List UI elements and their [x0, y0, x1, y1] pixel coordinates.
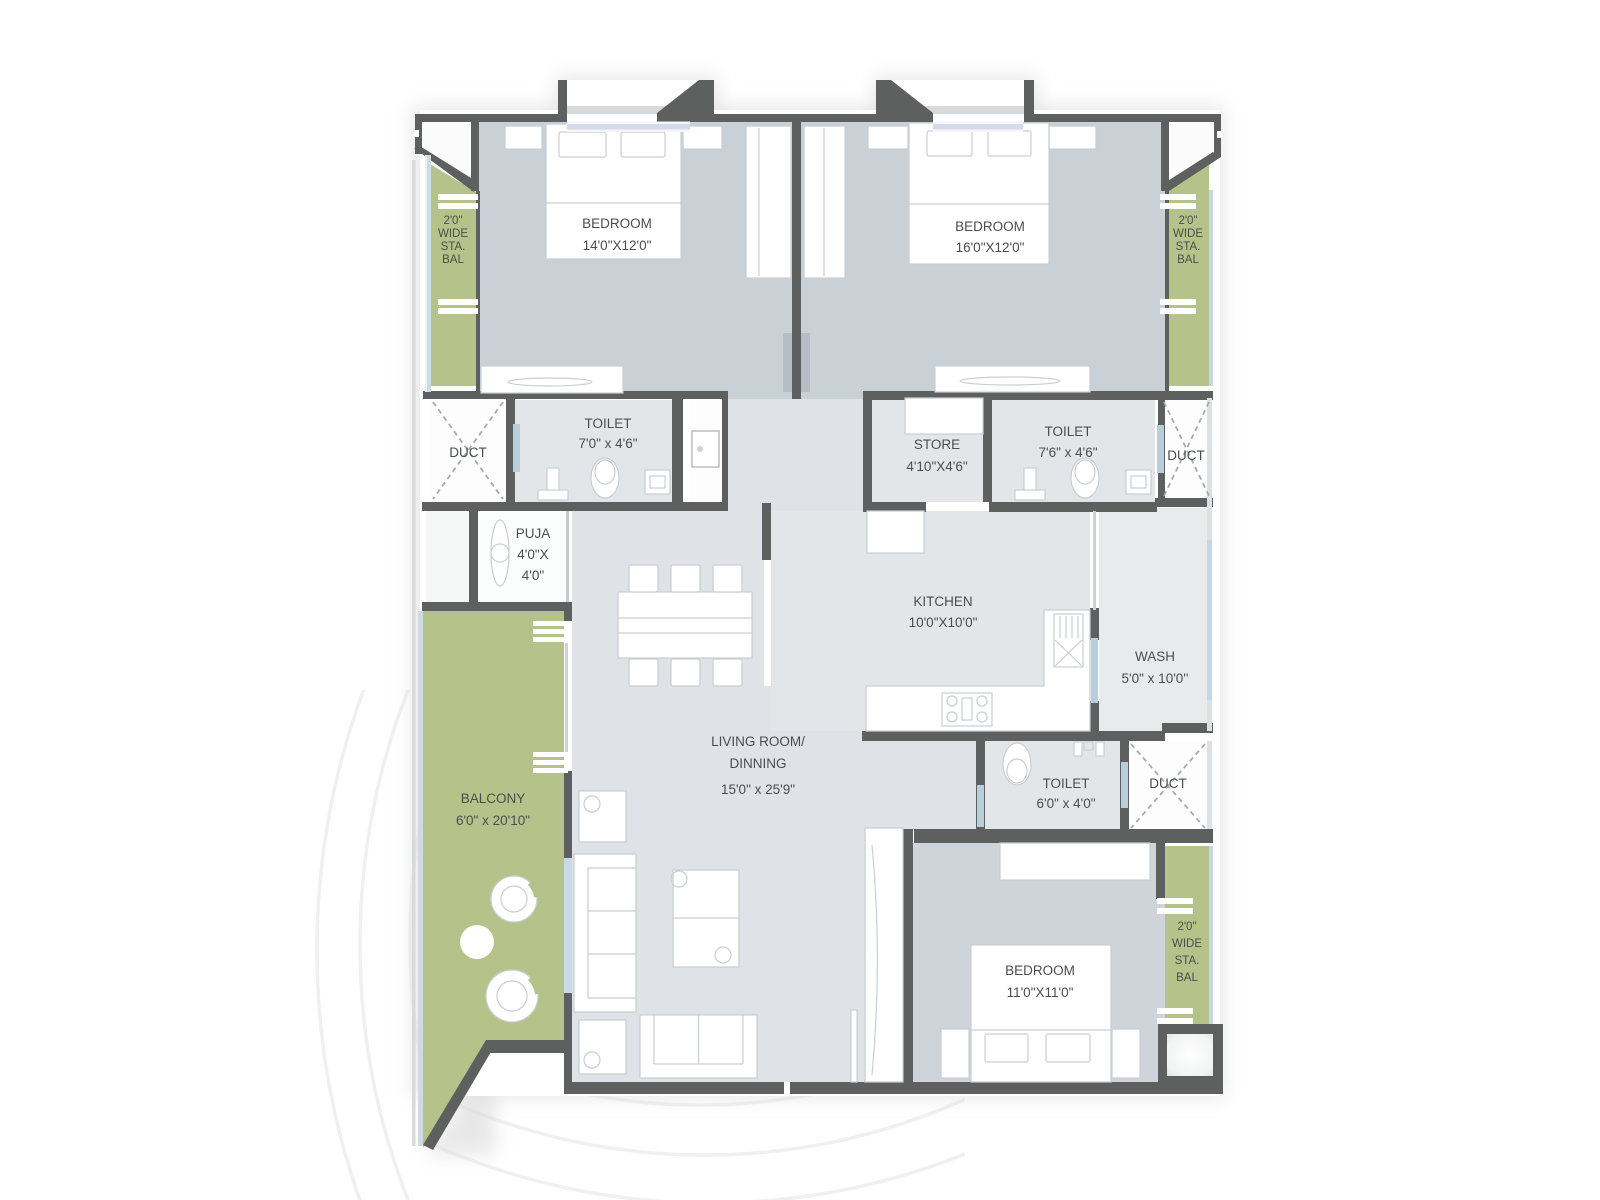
svg-text:4'0"X: 4'0"X: [517, 547, 548, 562]
svg-text:DUCT: DUCT: [1149, 776, 1187, 791]
svg-text:WIDE: WIDE: [1172, 938, 1202, 950]
svg-text:BEDROOM: BEDROOM: [1005, 963, 1075, 978]
svg-text:4'0": 4'0": [522, 568, 545, 583]
svg-text:TOILET: TOILET: [1042, 776, 1089, 791]
svg-text:BALCONY: BALCONY: [461, 791, 526, 806]
svg-text:LIVING ROOM/: LIVING ROOM/: [711, 734, 805, 749]
svg-text:STORE: STORE: [914, 437, 960, 452]
svg-text:15'0" x 25'9": 15'0" x 25'9": [721, 782, 795, 797]
svg-text:2'0": 2'0": [1177, 921, 1196, 933]
svg-text:TOILET: TOILET: [584, 416, 631, 431]
svg-text:BAL: BAL: [1177, 254, 1199, 266]
svg-text:10'0"X10'0": 10'0"X10'0": [909, 615, 978, 630]
svg-text:TOILET: TOILET: [1044, 424, 1091, 439]
svg-text:BAL: BAL: [442, 254, 464, 266]
svg-text:14'0"X12'0": 14'0"X12'0": [583, 238, 652, 253]
svg-text:2'0": 2'0": [1178, 215, 1197, 227]
svg-text:BEDROOM: BEDROOM: [955, 219, 1025, 234]
svg-text:WIDE: WIDE: [438, 228, 468, 240]
svg-text:6'0" x 20'10": 6'0" x 20'10": [456, 813, 530, 828]
svg-text:7'6" x 4'6": 7'6" x 4'6": [1038, 445, 1097, 460]
svg-text:KITCHEN: KITCHEN: [913, 594, 972, 609]
svg-text:DUCT: DUCT: [1167, 448, 1205, 463]
svg-text:4'10"X4'6": 4'10"X4'6": [906, 459, 967, 474]
svg-text:BEDROOM: BEDROOM: [582, 216, 652, 231]
svg-text:11'0"X11'0": 11'0"X11'0": [1007, 985, 1074, 1000]
svg-text:5'0" x 10'0'': 5'0" x 10'0'': [1122, 671, 1189, 686]
svg-text:2'0": 2'0": [443, 215, 462, 227]
svg-text:DINNING: DINNING: [730, 756, 787, 771]
svg-text:7'0" x 4'6": 7'0" x 4'6": [578, 436, 637, 451]
svg-text:WIDE: WIDE: [1173, 228, 1203, 240]
svg-text:6'0" x 4'0": 6'0" x 4'0": [1036, 796, 1095, 811]
svg-text:16'0"X12'0": 16'0"X12'0": [956, 240, 1025, 255]
svg-text:STA.: STA.: [1175, 955, 1200, 967]
svg-text:STA.: STA.: [1176, 241, 1201, 253]
svg-text:PUJA: PUJA: [516, 526, 551, 541]
svg-text:WASH: WASH: [1135, 649, 1175, 664]
svg-text:BAL: BAL: [1176, 972, 1198, 984]
svg-text:STA.: STA.: [441, 241, 466, 253]
svg-text:DUCT: DUCT: [449, 445, 487, 460]
